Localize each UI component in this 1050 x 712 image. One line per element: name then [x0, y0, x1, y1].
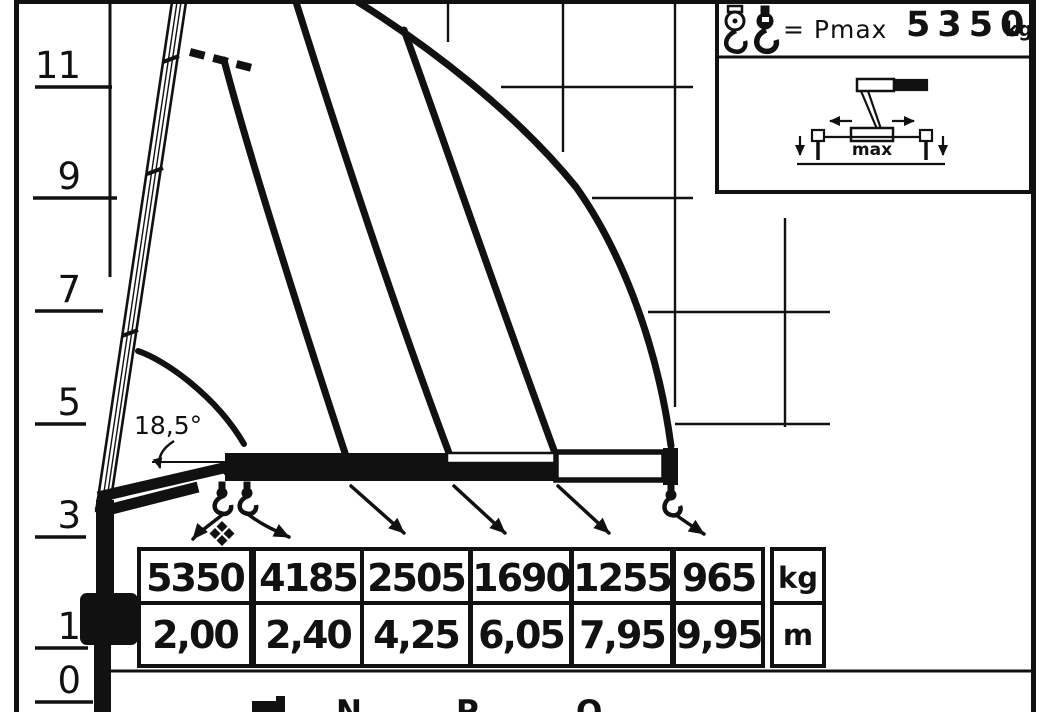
height-tick-label-0: 0 — [28, 661, 80, 701]
reach-value-cell: 6,05 — [469, 601, 573, 668]
variant-label-p: P — [456, 694, 479, 712]
load-value-cell: 965 — [672, 547, 765, 609]
pmax-equation-label: = Pmax — [783, 15, 887, 44]
load-value-cell: 5350 — [137, 547, 253, 609]
crane-load-diagram-page: 11 9 7 5 3 1 0 18,5° = Pmax 5350 kg max … — [0, 0, 1050, 712]
table-leader-arrows — [193, 486, 704, 539]
pmax-unit: kg — [1005, 17, 1033, 41]
load-value-cell: 2505 — [360, 547, 472, 609]
load-curves — [138, 2, 671, 453]
truck-icon — [252, 696, 285, 712]
height-tick-label-7: 7 — [28, 270, 80, 310]
reach-value-cell: 4,25 — [360, 601, 472, 668]
height-tick-label-11: 11 — [28, 46, 80, 86]
reach-value-cell: 9,95 — [672, 601, 765, 668]
height-tick-label-3: 3 — [28, 496, 80, 536]
load-value-cell: 4185 — [252, 547, 364, 609]
reach-value-cell: 7,95 — [570, 601, 674, 668]
variant-label-n: N — [336, 694, 362, 712]
variant-label-q: Q — [576, 694, 602, 712]
four-diamond-marker — [210, 521, 235, 546]
hook-icon — [215, 482, 681, 515]
outrigger-max-label: max — [846, 140, 898, 160]
load-curve-2 — [224, 60, 345, 453]
boom-angle-label: 18,5° — [134, 411, 202, 440]
height-tick-label-9: 9 — [28, 157, 80, 197]
reach-value-cell: 2,40 — [252, 601, 364, 668]
unit-m-cell: m — [770, 601, 826, 668]
load-value-cell: 1255 — [570, 547, 674, 609]
height-tick-label-1: 1 — [28, 607, 80, 647]
height-tick-label-5: 5 — [28, 383, 80, 423]
load-curve-3 — [296, 2, 449, 453]
reach-value-cell: 2,00 — [137, 601, 253, 668]
load-curve-envelope — [358, 2, 671, 446]
load-value-cell: 1690 — [469, 547, 573, 609]
unit-kg-cell: kg — [770, 547, 826, 609]
